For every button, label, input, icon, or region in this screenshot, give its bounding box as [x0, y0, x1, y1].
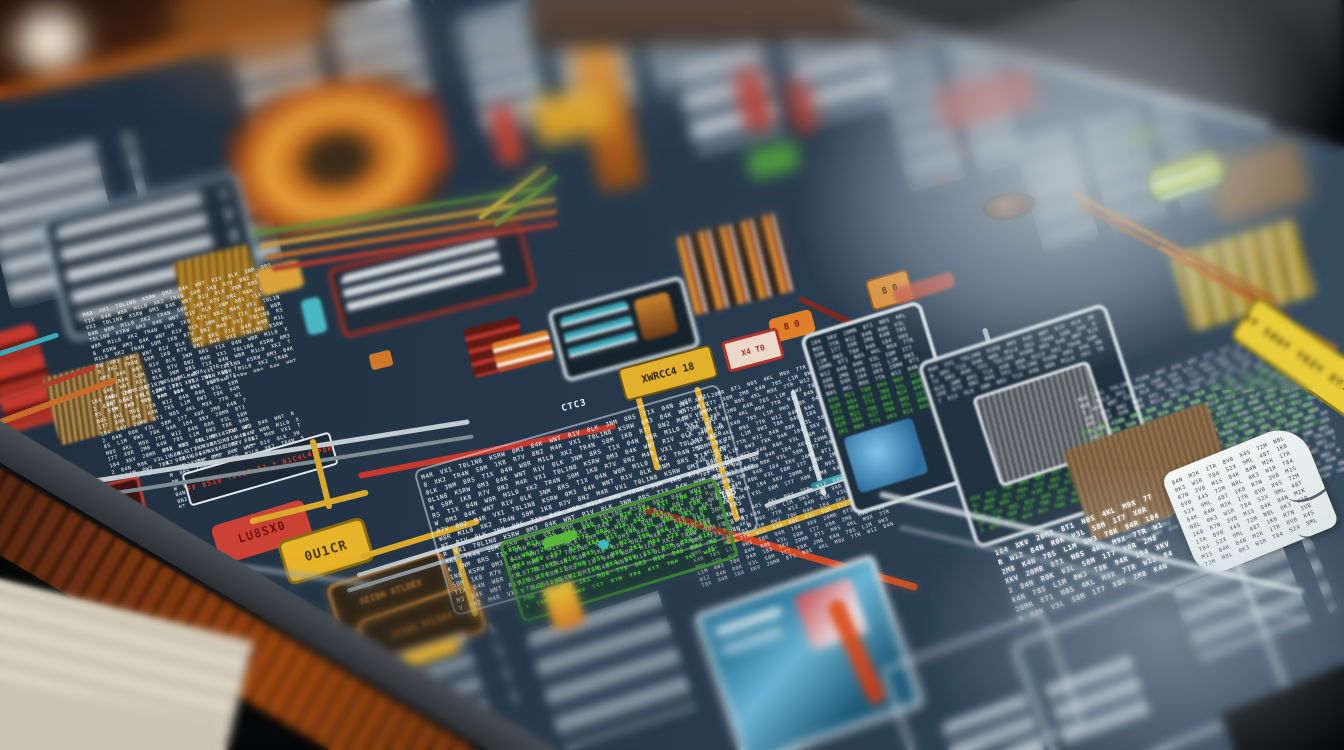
red-dot — [938, 176, 946, 183]
bokeh-highlight — [0, 8, 100, 74]
red-dot — [958, 148, 968, 156]
photo-scene: M4R VX1 T0L1N8 KSRW 0M3 84K WNT R1V 0LK … — [0, 0, 1344, 750]
teal-dot — [598, 540, 609, 549]
